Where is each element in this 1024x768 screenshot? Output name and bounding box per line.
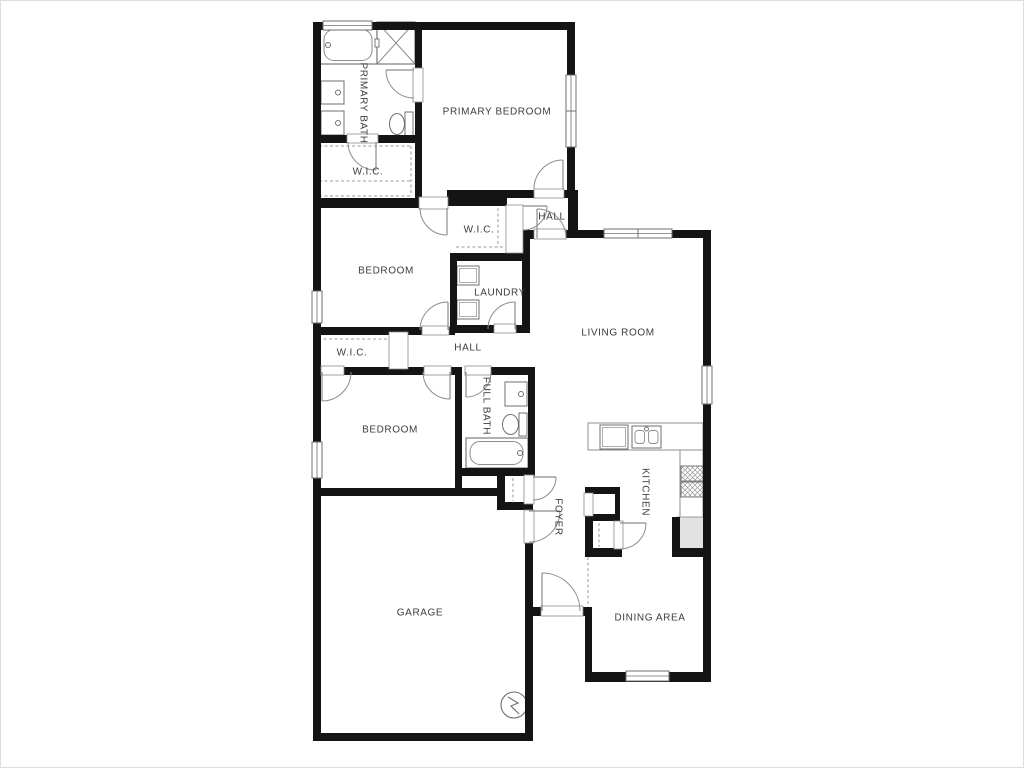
- wall-segment: [490, 367, 535, 375]
- door-frame: [534, 229, 566, 239]
- door-swing: [533, 477, 556, 500]
- door-swing: [620, 523, 646, 549]
- door-frame: [389, 332, 408, 369]
- door-swings: [322, 70, 646, 611]
- tub-fixture: [466, 438, 528, 468]
- fixtures: [320, 22, 707, 742]
- door-frame: [465, 366, 491, 375]
- window: [702, 366, 712, 404]
- window: [323, 21, 372, 30]
- window: [566, 75, 576, 147]
- wall-segment: [455, 468, 535, 476]
- door-frame: [614, 521, 623, 549]
- door-frame: [534, 189, 564, 198]
- wall-segment: [447, 190, 535, 198]
- wall-segment: [672, 548, 711, 557]
- door-frame: [494, 324, 516, 333]
- door-frames: [321, 68, 623, 616]
- door-swing: [386, 70, 414, 98]
- door-swing: [423, 372, 450, 399]
- door-frame: [541, 606, 583, 616]
- wall-segment: [343, 367, 425, 375]
- wall-segment: [515, 325, 530, 333]
- wall-segment: [703, 238, 711, 682]
- toilet-fixture: [503, 413, 528, 436]
- wall-segment: [615, 487, 620, 517]
- door-frame: [506, 205, 523, 253]
- toilet-fixture: [390, 112, 414, 136]
- door-frame: [524, 475, 534, 504]
- door-frame: [424, 366, 451, 375]
- window: [312, 291, 322, 323]
- floor-plan-canvas: PRIMARY BATHW.I.C.PRIMARY BEDROOMHALLW.I…: [0, 0, 1024, 768]
- wall-segment: [525, 542, 533, 741]
- closet-shelving-dashes: [318, 146, 692, 607]
- wall-segment: [313, 22, 321, 741]
- door-frame: [413, 68, 423, 102]
- door-swing: [466, 372, 491, 397]
- wall-segment: [313, 488, 505, 496]
- wall-segment: [313, 733, 533, 741]
- window: [604, 229, 672, 238]
- tub-fixture: [320, 26, 377, 64]
- appliance-fixture: [600, 425, 628, 449]
- wall-segment: [313, 198, 420, 208]
- door-frame: [347, 134, 378, 143]
- wall-segment: [585, 607, 592, 682]
- sink-fixture: [505, 382, 527, 406]
- wall-segment: [450, 253, 530, 261]
- wall-segment: [447, 198, 507, 206]
- door-frame: [321, 366, 344, 375]
- appliance-fixture: [457, 300, 479, 319]
- door-frame: [524, 510, 534, 543]
- heater-fixture: [501, 692, 527, 718]
- door-frame: [422, 326, 449, 335]
- wall-segment: [568, 196, 578, 232]
- door-swing: [420, 208, 447, 235]
- door-swing: [542, 573, 580, 611]
- window: [626, 671, 669, 681]
- wall-segment: [450, 253, 457, 333]
- wall-segment: [415, 30, 422, 198]
- door-swing: [534, 160, 563, 189]
- fridge-fixture: [677, 517, 707, 551]
- appliance-fixture: [457, 266, 479, 285]
- sink-fixture: [321, 111, 344, 135]
- sink-fixture: [321, 81, 344, 104]
- window: [312, 442, 322, 478]
- dblsink-fixture: [632, 426, 661, 448]
- door-swing: [322, 372, 351, 401]
- wall-segment: [528, 375, 535, 468]
- floor-plan-drawing: [0, 0, 1024, 768]
- door-frame: [419, 197, 448, 209]
- windows: [312, 21, 712, 681]
- door-frame: [584, 493, 593, 516]
